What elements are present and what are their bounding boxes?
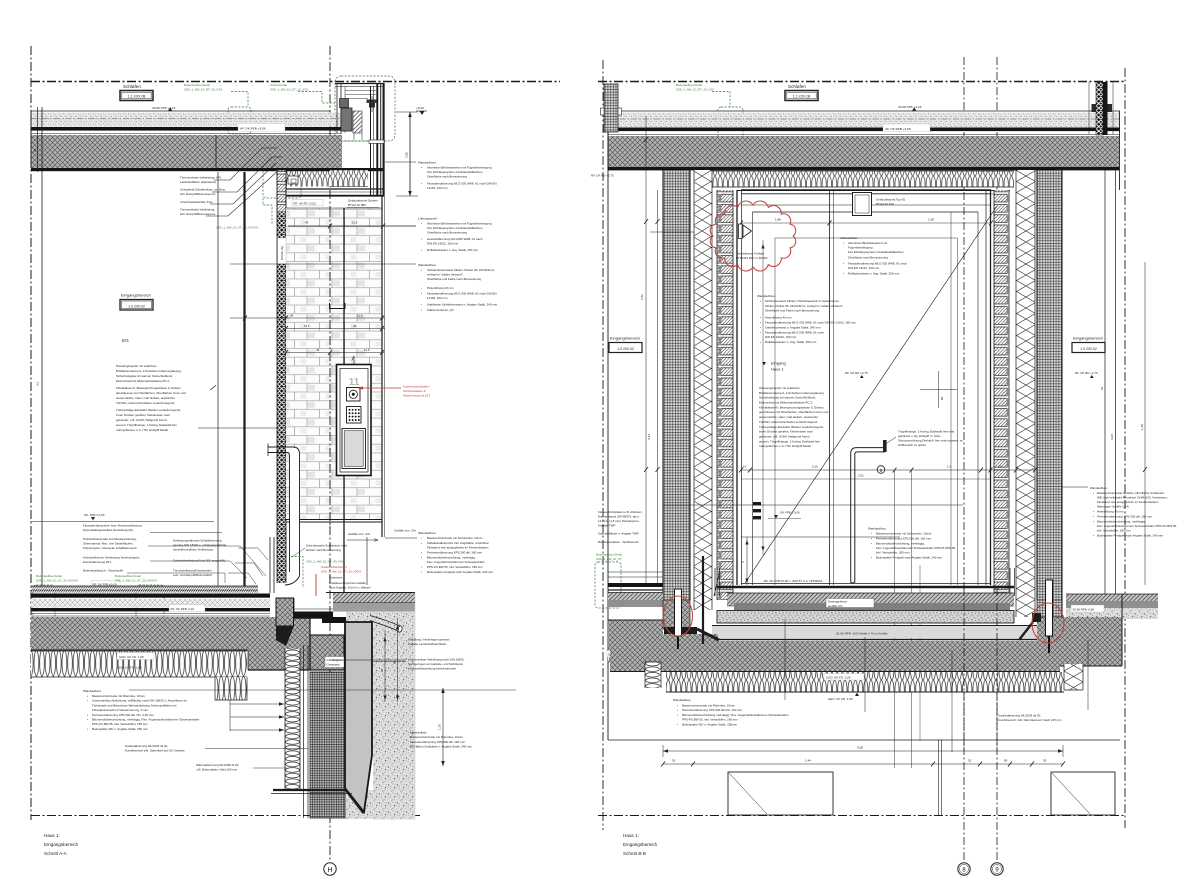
svg-text:Luft- und dampfdiffusionsdicht: Luft- und dampfdiffusionsdicht bbox=[173, 573, 212, 577]
svg-text:1,20: 1,20 bbox=[438, 724, 442, 730]
svg-text:Flissband, fein ausgeglichen i: Flissband, fein ausgeglichen im Fensterb… bbox=[1097, 500, 1159, 504]
svg-text:+6,00: +6,00 bbox=[416, 106, 424, 110]
svg-text:RF. UK RD +2,75: RF. UK RD +2,75 bbox=[845, 371, 868, 375]
svg-text:Flissband, fein ausgeglichen i: Flissband, fein ausgeglichen im Fensterb… bbox=[427, 546, 489, 550]
svg-text:SSK_1_AW_10_VT: SSK_1_AW_10_VT bbox=[596, 557, 622, 561]
svg-text:Türgriffstange, 1-förmig, Edel: Türgriffstange, 1-förmig, Edelstahl fein… bbox=[898, 430, 954, 434]
svg-text:SSK_1_AW_10_VT_90_XXX: SSK_1_AW_10_VT_90_XXX bbox=[306, 560, 344, 564]
svg-text:49: 49 bbox=[353, 324, 357, 328]
svg-text:•: • bbox=[421, 308, 422, 312]
svg-text:DIN EN 13162, 160 mm: DIN EN 13162, 160 mm bbox=[427, 242, 459, 246]
svg-text:Aussensprechstelle /: Aussensprechstelle / bbox=[403, 385, 430, 389]
svg-text:2,52: 2,52 bbox=[640, 294, 644, 300]
svg-text:gemäss DIN 18040-1, schlagrege: gemäss DIN 18040-1, schlagregendichte, bbox=[173, 543, 227, 547]
svg-text:Stahlbeton Sichtbetonwand n. A: Stahlbeton Sichtbetonwand n. Angabe Stat… bbox=[427, 303, 498, 307]
svg-text:gebürstet, o.B. GUMI, Haftgrun: gebürstet, o.B. GUMI, Haftgrund fremd bbox=[116, 418, 167, 422]
svg-text:SSK_1_AW_10_VT_30_XXXXX: SSK_1_AW_10_VT_30_XXXXX bbox=[216, 226, 258, 230]
svg-text:•: • bbox=[421, 182, 422, 186]
svg-text:•: • bbox=[421, 166, 422, 170]
svg-text:•: • bbox=[421, 536, 422, 540]
svg-text:Perimeterdämmung XPS,300 dkl,: Perimeterdämmung XPS,300 dkl, 160 mm bbox=[427, 551, 483, 555]
svg-text:Türschliesser Freilauf: Türschliesser Freilauf bbox=[736, 252, 764, 256]
svg-text:30: 30 bbox=[672, 759, 676, 763]
svg-text:1,48: 1,48 bbox=[1140, 424, 1144, 430]
svg-text:Perimeterdämmung XPS,300 dkl,: Perimeterdämmung XPS,300 dkl, 160 mm bbox=[876, 537, 932, 541]
svg-text:o.B. Dämmplatte, Naht 150 mm: o.B. Dämmplatte, Naht 150 mm bbox=[196, 768, 238, 772]
svg-text:Wandaufbau:: Wandaufbau: bbox=[1090, 486, 1108, 490]
svg-text:geschlossen mit Oberflächen, O: geschlossen mit Oberflächen, Oberflächen… bbox=[759, 410, 829, 414]
svg-text:•: • bbox=[421, 286, 422, 290]
svg-text:Flex. Fugendichtschlämmen Schw: Flex. Fugendichtschlämmen Schwedenbahn bbox=[427, 560, 485, 564]
svg-text:Rollladenkasten n. Ang. Statik: Rollladenkasten n. Ang. Statik, 250 mm bbox=[848, 272, 900, 276]
svg-text:1.1.XXX.08: 1.1.XXX.08 bbox=[128, 95, 146, 99]
svg-text:H: H bbox=[327, 867, 332, 874]
svg-text:80: 80 bbox=[393, 660, 397, 664]
svg-text:aussen: Türgriffstange, 1-förm: aussen: Türgriffstange, 1-förmig, Edelst… bbox=[116, 423, 177, 427]
svg-text:Sockeldämmung WLG035 dk 30,: Sockeldämmung WLG035 dk 30, bbox=[125, 744, 168, 748]
svg-text:Kombibereich, inkl. Dämmkeil a: Kombibereich, inkl. Dämmkeil auf. Nach 1… bbox=[998, 718, 1062, 722]
svg-text:Fassadendämmung WLG 035 WAB, A: Fassadendämmung WLG 035 WAB, A1 nach bbox=[765, 331, 824, 335]
svg-text:Wärmedämmung WLG035 df 20,: Wärmedämmung WLG035 df 20, bbox=[196, 763, 239, 767]
svg-text:•: • bbox=[421, 541, 422, 545]
svg-text:GEO. UK FD -1,80: GEO. UK FD -1,80 bbox=[828, 697, 853, 701]
svg-text:•: • bbox=[760, 299, 761, 303]
svg-text:•: • bbox=[1093, 520, 1094, 524]
svg-text:•: • bbox=[871, 542, 872, 546]
svg-text:•: • bbox=[760, 326, 761, 330]
svg-text:Angabe Landschaftsarchitekt: Angabe Landschaftsarchitekt bbox=[408, 642, 446, 646]
svg-text:20: 20 bbox=[968, 759, 972, 763]
svg-text:Fassadendämmung WLG 035 WAB, A: Fassadendämmung WLG 035 WAB, A1 nach bbox=[848, 261, 907, 265]
svg-text:1,44: 1,44 bbox=[805, 759, 811, 763]
svg-text:PPS-PU,BW 55, inkl. Verlaufsfi: PPS-PU,BW 55, inkl. Verlaufsfilm, 265 mm bbox=[427, 565, 483, 569]
svg-text:EG: EG bbox=[122, 338, 129, 343]
svg-text:5,08: 5,08 bbox=[857, 746, 863, 750]
svg-text:Wandaufbau:: Wandaufbau: bbox=[418, 161, 436, 165]
svg-text:Rollladenkasten n. ang. Statik: Rollladenkasten n. ang. Statik, 250 mm bbox=[427, 248, 479, 252]
svg-text:Wandaufbau:: Wandaufbau: bbox=[418, 531, 436, 535]
svg-text:Eingangsbereich: Eingangsbereich bbox=[44, 842, 79, 847]
svg-text:•: • bbox=[871, 537, 872, 541]
svg-text:•: • bbox=[87, 727, 88, 731]
svg-text:Hauseingangstür mit seitlichem: Hauseingangstür mit seitlichem bbox=[759, 386, 800, 390]
svg-text:Türfassade und Bituminöse Bahn: Türfassade und Bituminöse Bahnabdichtung… bbox=[92, 703, 177, 707]
svg-text:OK. FFB ± 0,00: OK. FFB ± 0,00 bbox=[84, 513, 105, 517]
svg-text:Abstimmung mit ELT: Abstimmung mit ELT bbox=[403, 394, 430, 398]
svg-text:•: • bbox=[843, 261, 844, 265]
svg-text:Wandaufbau:: Wandaufbau: bbox=[83, 689, 101, 693]
svg-text:Hinterlüftung 40 mm: Hinterlüftung 40 mm bbox=[427, 286, 454, 290]
svg-text:5,10: 5,10 bbox=[812, 465, 818, 469]
svg-text:Bitumendickbeschichtung, mehrl: Bitumendickbeschichtung, mehrlagig, Flex… bbox=[92, 718, 200, 722]
svg-text:Auffüllung / Hinterlagen gemäs: Auffüllung / Hinterlagen gemäss bbox=[408, 638, 450, 642]
svg-text:Gewegepl.: Gewegepl. bbox=[327, 663, 341, 667]
svg-text:36: 36 bbox=[290, 314, 294, 318]
svg-text:Schnitt A-A: Schnitt A-A bbox=[44, 851, 68, 856]
svg-text:Perimeterdämmung XPS,300 dkl 0: Perimeterdämmung XPS,300 dkl 0%, 160 mm bbox=[682, 708, 743, 712]
svg-text:Flex. Fugendichtschlämmen Schw: Flex. Fugendichtschlämmen Schwedenbahn P… bbox=[1097, 524, 1177, 528]
svg-text:•: • bbox=[760, 340, 761, 344]
svg-text:Bodenplatte WU n. Angabe Stati: Bodenplatte WU n. Angabe Statik, 250mm bbox=[682, 722, 738, 726]
svg-text:Bitumendickbeschichtung, mehrl: Bitumendickbeschichtung, mehrlagig, bbox=[427, 556, 476, 560]
svg-text:Angabe TWP: Angabe TWP bbox=[598, 524, 615, 528]
svg-text:Aluminium Blechkassetten mit F: Aluminium Blechkassetten mit Fugenhinter… bbox=[427, 166, 492, 170]
svg-text:•: • bbox=[677, 704, 678, 708]
svg-text:Entwässerungsrinne Gefälle: Entwässerungsrinne Gefälle bbox=[329, 581, 366, 585]
svg-text:Fixierstein: Fixierstein bbox=[329, 576, 343, 580]
svg-text:Bodenplatte Fertigteil nach An: Bodenplatte Fertigteil nach Angabe Stati… bbox=[876, 556, 943, 560]
svg-text:Schutzvorrichtung Drehtürfl. f: Schutzvorrichtung Drehtürfl. fein matt s… bbox=[898, 439, 963, 443]
svg-text:Sicherheitsglas mit warmer Kan: Sicherheitsglas mit warmer Kante/Alublen… bbox=[116, 374, 173, 378]
svg-text:Bitumendickbeschichtung, mehrl: Bitumendickbeschichtung, mehrlagig, bbox=[876, 542, 925, 546]
svg-text:•: • bbox=[421, 248, 422, 252]
svg-text:50: 50 bbox=[940, 396, 944, 400]
svg-text:30.08.STB +3,15: 30.08.STB +3,15 bbox=[898, 105, 922, 109]
svg-text:Holzfunktionsmatte mit Filterk: Holzfunktionsmatte mit Filterkaschierung… bbox=[83, 537, 137, 541]
svg-text:3,44: 3,44 bbox=[1110, 434, 1114, 440]
svg-text:RF. OK FFB ±0,00 = +526,57 m ü: RF. OK FFB ±0,00 = +526,57 m ü. NHN2016 bbox=[764, 579, 823, 583]
svg-text:Klimaklasse III, Beanspruchung: Klimaklasse III, Beanspruchungsklasse S,… bbox=[759, 405, 824, 409]
svg-text:Wandaufbau:: Wandaufbau: bbox=[868, 527, 886, 531]
svg-text:Klebeschichtplatten o.B. Alube: Klebeschichtplatten o.B. Alubeton bbox=[598, 510, 642, 514]
svg-text:1.0.200.02: 1.0.200.02 bbox=[128, 305, 145, 309]
svg-text:Einbruchschutz Widerstandsklas: Einbruchschutz Widerstandsklasse RC 2, bbox=[759, 401, 813, 405]
svg-text:Türriffen, überenchschieber ve: Türriffen, überenchschieber verdeckt lie… bbox=[116, 401, 175, 405]
svg-text:Eingangsbereich: Eingangsbereich bbox=[610, 336, 640, 341]
svg-text:Polypropylen: Unterseite schal: Polypropylen: Unterseite schalldämmend bbox=[83, 546, 137, 550]
svg-text:Haus 1:: Haus 1: bbox=[623, 833, 639, 838]
svg-text:SSK_1_AW_10_DT_10_XXX: SSK_1_AW_10_DT_10_XXX bbox=[270, 87, 308, 91]
svg-text:Sockel-Abdichtung /: Sockel-Abdichtung / bbox=[321, 565, 347, 569]
svg-text:Fugenhinterlegung: Fugenhinterlegung bbox=[848, 246, 873, 250]
svg-text:inkl. Einhängesystem mit Edels: inkl. Einhängesystem mit Edelstahllasche… bbox=[848, 250, 904, 254]
svg-text:lackiert nach Bemusterung: lackiert nach Bemusterung bbox=[306, 548, 341, 552]
svg-text:Wandaufbau:: Wandaufbau: bbox=[757, 294, 775, 298]
svg-text:30.08.STB +3,15: 30.08.STB +3,15 bbox=[152, 106, 176, 110]
svg-text:Schenkmaske Sockelstein matt: Schenkmaske Sockelstein matt bbox=[306, 544, 347, 548]
svg-text:3,2: 3,2 bbox=[36, 382, 40, 386]
svg-text:11,5: 11,5 bbox=[304, 324, 310, 328]
svg-text:Fassadenbausystem bzw. Alumini: Fassadenbausystem bzw. Aluminiumfassung bbox=[83, 524, 142, 528]
svg-text:Bautenschutzmatte mit Schutzvl: Bautenschutzmatte mit Schutzvlies, 10mm bbox=[876, 532, 932, 536]
svg-text:•: • bbox=[1093, 491, 1094, 495]
svg-text:Schlafen: Schlafen bbox=[788, 84, 806, 89]
svg-text:aussen: Türgriffstange, 1-förm: aussen: Türgriffstange, 1-förmig, Edelst… bbox=[759, 439, 820, 443]
svg-text:•: • bbox=[421, 222, 422, 226]
svg-text:15: 15 bbox=[998, 465, 1002, 469]
svg-text:Briefkastenelement, 3-Scheiben: Briefkastenelement, 3-Scheiben Isolierve… bbox=[759, 391, 825, 395]
svg-text:1.0.200.02: 1.0.200.02 bbox=[1080, 347, 1097, 351]
svg-text:•: • bbox=[871, 556, 872, 560]
svg-text:•: • bbox=[871, 532, 872, 536]
svg-text:13162, 160 mm: 13162, 160 mm bbox=[427, 186, 448, 190]
svg-text:RF. OK RFB -0,16: RF. OK RFB -0,16 bbox=[171, 607, 195, 611]
svg-text:DIN EN 13162, 160 mm: DIN EN 13162, 160 mm bbox=[765, 335, 797, 339]
svg-text:Eingang: Eingang bbox=[771, 361, 786, 366]
svg-text:SSK_1_AW_10_DT_30_XXXX: SSK_1_AW_10_DT_30_XXXX bbox=[321, 570, 361, 574]
svg-text:Hohlraumgedämmte Schalldämmung: Hohlraumgedämmte Schalldämmung bbox=[173, 539, 222, 543]
svg-text:Türbeschläge Edelstahl, Bänder: Türbeschläge Edelstahl, Bänder verdeckt … bbox=[116, 408, 181, 412]
svg-text:RF. UK RD +2,75: RF. UK RD +2,75 bbox=[591, 174, 614, 178]
svg-text:•: • bbox=[1093, 510, 1094, 514]
svg-text:SSK_1_AW_10_DT_20_XXX: SSK_1_AW_10_DT_20_XXX bbox=[184, 87, 222, 91]
svg-text:inkl. Einhängesystem mit Edels: inkl. Einhängesystem mit Edelstahllasche… bbox=[427, 170, 483, 174]
svg-text:matt gebürstet, n.A. ITM, Endg: matt gebürstet, n.A. ITM, Endgriff Metal… bbox=[759, 444, 811, 448]
svg-text:•: • bbox=[421, 556, 422, 560]
svg-text:Sockeldämmung WLG035 dk 30,: Sockeldämmung WLG035 dk 30, bbox=[998, 714, 1041, 718]
svg-text:•: • bbox=[421, 570, 422, 574]
svg-text:Obermaterial: Alta-, drei Seit: Obermaterial: Alta-, drei Seitenflächen, bbox=[83, 542, 134, 546]
svg-text:•: • bbox=[1093, 534, 1094, 538]
svg-text:11,5: 11,5 bbox=[352, 221, 358, 225]
svg-text:AF. OK RFB +3,06: AF. OK RFB +3,06 bbox=[885, 127, 911, 131]
svg-text:Bautenschutzmatte mit Filtervl: Bautenschutzmatte mit Filtervlies, 10mm bbox=[92, 694, 145, 698]
svg-text:Schnitt B-B: Schnitt B-B bbox=[623, 851, 646, 856]
svg-text:umweltfreundliche Verkleidung: umweltfreundliche Verkleidung bbox=[173, 548, 213, 552]
svg-text:OK FFB ± 0,00: OK FFB ± 0,00 bbox=[780, 511, 800, 515]
svg-text:20 UK RFB -100 Gefälle 2 % im: 20 UK RFB -100 Gefälle 2 % im Gefälle bbox=[836, 632, 888, 636]
svg-text:gebürstet o. flg. Endgriff m.: gebürstet o. flg. Endgriff m. hohe bbox=[898, 434, 941, 438]
svg-text:Nomenklaturgestelltes Anschlus: Nomenklaturgestelltes Anschlussprofil, bbox=[83, 528, 133, 532]
svg-text:innen Drücker gestiftet, Klebe: innen Drücker gestiftet, Klebeleisten ma… bbox=[116, 413, 170, 417]
svg-text:11: 11 bbox=[349, 377, 360, 388]
svg-text:49: 49 bbox=[305, 221, 309, 225]
svg-text:Aluminium Blechkassetten mit F: Aluminium Blechkassetten mit Fugenhinter… bbox=[427, 222, 492, 226]
svg-text:•: • bbox=[87, 713, 88, 717]
svg-text:15: 15 bbox=[743, 465, 747, 469]
svg-text:Eingangsbereich: Eingangsbereich bbox=[623, 842, 658, 847]
svg-text:Meterauflast:: Meterauflast: bbox=[410, 731, 427, 735]
svg-text:2,01: 2,01 bbox=[858, 474, 864, 478]
svg-text:Gebäudezutritt Typ B1: Gebäudezutritt Typ B1 bbox=[876, 198, 906, 202]
svg-text:•: • bbox=[421, 551, 422, 555]
svg-text:Hinterlüftung 40 mm: Hinterlüftung 40 mm bbox=[765, 316, 792, 320]
svg-text:abschliessen mit Oberflächen,: abschliessen mit Oberflächen, Oberfläche… bbox=[116, 391, 186, 395]
svg-text:inkl. Verlaufsfilm, 265 mm: inkl. Verlaufsfilm, 265 mm bbox=[1097, 529, 1131, 533]
svg-text:PPS-PU,BW 55, inkl. Verlaufsfi: PPS-PU,BW 55, inkl. Verlaufsfilm, 265 mm bbox=[682, 718, 738, 722]
svg-text:•: • bbox=[421, 565, 422, 569]
svg-text:Schlüsseltaster in: Schlüsseltaster in bbox=[403, 389, 426, 393]
svg-text:13162, 160 mm: 13162, 160 mm bbox=[427, 296, 448, 300]
svg-text:Rollladenkasten n. Ang. Statik: Rollladenkasten n. Ang. Statik, 250 mm bbox=[765, 340, 817, 344]
svg-text:aussen Eiche, natur, matt lack: aussen Eiche, natur, matt lackiert, elas… bbox=[759, 415, 818, 419]
svg-text:Gefälle min. 2%: Gefälle min. 2% bbox=[394, 529, 416, 533]
svg-text:SSK_1_AW_10_VT_20_XXXXX: SSK_1_AW_10_VT_20_XXXXX bbox=[36, 578, 78, 582]
svg-text:Flex. Fugendichtschlämmen Schw: Flex. Fugendichtschlämmen Schwedenbahn P… bbox=[876, 546, 956, 550]
svg-text:Stahlbetonwand n. Angabe Stati: Stahlbetonwand n. Angabe Statik, 240 mm bbox=[765, 326, 821, 330]
svg-text:•: • bbox=[421, 303, 422, 307]
svg-text:Bodenplatte Fertigteil nach An: Bodenplatte Fertigteil nach Angabe Stati… bbox=[427, 570, 494, 574]
svg-text:Wandaufbau:: Wandaufbau: bbox=[418, 263, 436, 267]
svg-text:Verblendmauerwerk Klinker, Kli: Verblendmauerwerk Klinker, Klinker DF 24… bbox=[427, 268, 495, 272]
svg-text:Kunststoffreiche Verbindung St: Kunststoffreiche Verbindung Streitschrau… bbox=[83, 556, 140, 560]
svg-text:Hinterlüftung 40 mm: Hinterlüftung 40 mm bbox=[1097, 510, 1124, 514]
svg-text:Klinker, Klinker DF 240/115mm,: Klinker, Klinker DF 240/115mm, verlegt i… bbox=[765, 304, 844, 308]
svg-text:3,44: 3,44 bbox=[647, 434, 651, 440]
svg-text:Bautenschutzmatte mit Filtervl: Bautenschutzmatte mit Filtervlies, 10mm bbox=[410, 735, 463, 739]
svg-text:WB, Nah helixstahl-Berzekturr: WB, Nah helixstahl-Berzekturr OHM 6/13, … bbox=[1097, 496, 1168, 500]
svg-text:Wandaufbau:: Wandaufbau: bbox=[673, 698, 691, 702]
svg-text:•: • bbox=[760, 331, 761, 335]
svg-text:AF. OK RFB +3,06: AF. OK RFB +3,06 bbox=[240, 126, 266, 130]
svg-text:•: • bbox=[421, 268, 422, 272]
svg-text:•: • bbox=[843, 272, 844, 276]
svg-text:52: 52 bbox=[1100, 386, 1104, 390]
svg-text:BTGA 20 KW: BTGA 20 KW bbox=[876, 202, 894, 206]
svg-text:89: 89 bbox=[1004, 759, 1008, 763]
svg-text:Edelstahlwinkelprofil (mit WS: Edelstahlwinkelprofil (mit WS ausgefüllt… bbox=[173, 559, 225, 563]
svg-text:Bitumendickbeschichtung mehrla: Bitumendickbeschichtung mehrlagig, Flex.… bbox=[682, 713, 789, 717]
svg-text:Einbruchschutz Widerstandsklas: Einbruchschutz Widerstandsklasse RC 2, bbox=[116, 379, 170, 383]
svg-text:Perimeterdämmung XPS,300 dkl,: Perimeterdämmung XPS,300 dkl, 160 mm bbox=[410, 740, 466, 744]
svg-text:•: • bbox=[843, 241, 844, 245]
svg-text:Befestigerplatten - Sichtberei: Befestigerplatten - Sichtbereich bbox=[598, 540, 639, 544]
svg-text:inkl. Dampfdiffusionssperre: inkl. Dampfdiffusionssperre bbox=[180, 212, 216, 216]
svg-text:RF. UK RD +2,75: RF. UK RD +2,75 bbox=[1075, 371, 1098, 375]
svg-text:Aussenseitige Abdichtung nach: Aussenseitige Abdichtung nach DIN 18533, bbox=[408, 658, 465, 662]
svg-text:•: • bbox=[87, 699, 88, 703]
svg-text:Eingangsbereich: Eingangsbereich bbox=[1073, 336, 1103, 341]
svg-text:1,0: 1,0 bbox=[947, 465, 951, 469]
svg-text:Fassadendämmung WLG 035 WAB, A: Fassadendämmung WLG 035 WAB, A1 nach DIN… bbox=[427, 182, 497, 186]
svg-text:1,38: 1,38 bbox=[928, 218, 934, 222]
svg-text:RF. UK FD +2,52: RF. UK FD +2,52 bbox=[294, 202, 317, 206]
svg-text:Haus 1:: Haus 1: bbox=[44, 833, 60, 838]
svg-text:11,5: 11,5 bbox=[357, 314, 363, 318]
svg-text:Bodenplatte Fertigteil nach An: Bodenplatte Fertigteil nach Angabe Stati… bbox=[1097, 534, 1164, 538]
svg-text:Diamantwand (DF,45/975, abs.): Diamantwand (DF,45/975, abs.) bbox=[598, 515, 639, 519]
svg-text:Lüftungsprofil:: Lüftungsprofil: bbox=[418, 217, 438, 221]
svg-text:Gefälle min. 2%: Gefälle min. 2% bbox=[348, 532, 370, 536]
svg-text:30.08 RFB -0,86: 30.08 RFB -0,86 bbox=[1073, 608, 1095, 612]
svg-text:•: • bbox=[760, 316, 761, 320]
svg-text:Oberfläche nach Bemusterung: Oberfläche nach Bemusterung bbox=[848, 256, 888, 260]
svg-text:Kalkzementputz, Q3: Kalkzementputz, Q3 bbox=[427, 308, 454, 312]
svg-text:Spachtelfläche n. Angabe TWP: Spachtelfläche n. Angabe TWP bbox=[598, 532, 639, 536]
svg-text:inkl. Verlaufsfilm, 265 mm: inkl. Verlaufsfilm, 265 mm bbox=[876, 551, 910, 555]
svg-text:UGD. UK FD -1,80: UGD. UK FD -1,80 bbox=[826, 676, 851, 680]
svg-text:Bautenschutzmatte mit Filtervl: Bautenschutzmatte mit Filtervlies, 10mm bbox=[682, 704, 735, 708]
svg-text:•: • bbox=[677, 708, 678, 712]
svg-text:SSK_1_AW_10_DT_20_XXX: SSK_1_AW_10_DT_20_XXX bbox=[676, 87, 714, 91]
svg-text:Türschwellenprofil barrierefre: Türschwellenprofil barrierefrei, bbox=[173, 569, 213, 573]
svg-text:1.0.200.02: 1.0.200.02 bbox=[617, 347, 634, 351]
svg-text:inkl. Einhängesystem mit Edels: inkl. Einhängesystem mit Edelstahllasche… bbox=[427, 226, 483, 230]
svg-text:Dichtb. 2lg: Dichtb. 2lg bbox=[280, 246, 284, 260]
svg-text:Haus 1: Haus 1 bbox=[771, 367, 784, 372]
svg-text:Perimeterdämmung XPS,300 dkl.: Perimeterdämmung XPS,300 dkl. 0%, 2,60 m… bbox=[92, 713, 154, 717]
svg-text:•: • bbox=[677, 722, 678, 726]
svg-text:DIN EN 13162, 160 mm: DIN EN 13162, 160 mm bbox=[848, 266, 880, 270]
svg-text:12,5cm, (1,5 mm) Dampfsperre,: 12,5cm, (1,5 mm) Dampfsperre, bbox=[598, 519, 640, 523]
svg-text:Schlafen: Schlafen bbox=[123, 84, 141, 89]
svg-text:Fassadendämmung WLG 035 WAB, A: Fassadendämmung WLG 035 WAB, A1 nach DIN… bbox=[427, 292, 497, 296]
svg-text:hochgezogen an Gelände- und Si: hochgezogen an Gelände- und Sichtbeton bbox=[408, 662, 463, 666]
svg-text:UGD. UK FD -1,08: UGD. UK FD -1,08 bbox=[119, 655, 144, 659]
svg-text:matt gebürstet, n.A. ITM, Endg: matt gebürstet, n.A. ITM, Endgriff Metal… bbox=[116, 428, 168, 432]
svg-text:Oberfläche und Farbe nach Bemu: Oberfläche und Farbe nach Bemusterung bbox=[765, 309, 819, 313]
svg-text:BTGA JK 880: BTGA JK 880 bbox=[348, 203, 366, 207]
svg-text:•: • bbox=[677, 713, 678, 717]
svg-text:Eingangsbereich: Eingangsbereich bbox=[121, 293, 151, 298]
svg-text:Wartungen Gefälle 2,2%: Wartungen Gefälle 2,2% bbox=[1097, 505, 1129, 509]
svg-text:Briefkastenelement, 3-Scheiben: Briefkastenelement, 3-Scheiben Isolierve… bbox=[116, 369, 182, 373]
svg-text:Kunststoffabdichtung hinterlau: Kunststoffabdichtung hinterlaufsicher bbox=[408, 667, 456, 671]
svg-text:SSK_1_AW_10_VT_20_XXXXX: SSK_1_AW_10_VT_20_XXXXX bbox=[115, 578, 157, 582]
svg-text:Bautenschutzmatte mit Schutzvl: Bautenschutzmatte mit Schutzvlies, 10mm bbox=[427, 536, 483, 540]
svg-text:•: • bbox=[760, 321, 761, 325]
svg-text:Türbeschläge Edelstahl, Bänder: Türbeschläge Edelstahl, Bänder verdeckt … bbox=[759, 425, 824, 429]
svg-text:Bitumendickbeschichtung, mehrl: Bitumendickbeschichtung, mehrlagig, bbox=[1097, 520, 1146, 524]
svg-text:GEO. UK FD -1,80: GEO. UK FD -1,80 bbox=[117, 666, 142, 670]
svg-text:Aussenaufbau Abdichtung, vollf: Aussenaufbau Abdichtung, vollflächig, na… bbox=[92, 699, 187, 703]
svg-text:1.1.XXX.08: 1.1.XXX.08 bbox=[793, 95, 811, 99]
svg-text:Griffbereich zu optiert: Griffbereich zu optiert bbox=[898, 443, 926, 447]
svg-text:Türriffen, überenchschieber ve: Türriffen, überenchschieber verdeckt lie… bbox=[759, 420, 818, 424]
svg-text:WU-Beton Sohlplatte n. Angabe: WU-Beton Sohlplatte n. Angabe Statik, 24… bbox=[410, 745, 472, 749]
svg-text:Aluminium Blechkassetten mit: Aluminium Blechkassetten mit bbox=[848, 241, 887, 245]
svg-text:60: 60 bbox=[380, 668, 384, 672]
svg-text:Attikaaufbau:: Attikaaufbau: bbox=[840, 236, 858, 240]
svg-text:Bodenplatte WU n. Angabe Stati: Bodenplatte WU n. Angabe Statik, 250 mm bbox=[92, 727, 148, 731]
svg-text:Sichtmauerwerk Klinker, Klinke: Sichtmauerwerk Klinker, Klinkerbauwerk i… bbox=[765, 299, 839, 303]
svg-text:Estrichdämmung 30:1: Estrichdämmung 30:1 bbox=[83, 560, 112, 564]
svg-text:gebürstet, o.B. GUMI, Haftgrun: gebürstet, o.B. GUMI, Haftgrund fremd bbox=[759, 435, 810, 439]
svg-text:•: • bbox=[421, 292, 422, 296]
svg-text:nach Angabe, 8,5l m² o. Wasser: nach Angabe, 8,5l m² o. Wasser bbox=[329, 586, 371, 590]
svg-text:30: 30 bbox=[33, 148, 37, 152]
svg-text:Oberfläche nach Bemusterung: Oberfläche nach Bemusterung bbox=[427, 231, 467, 235]
svg-text:BTS/LES 500, m DF 8%: BTS/LES 500, m DF 8% bbox=[736, 256, 768, 260]
svg-text:•: • bbox=[421, 237, 422, 241]
svg-text:PPS-PU,BW 55, inkl. Verlaufsfi: PPS-PU,BW 55, inkl. Verlaufsfilm, 265 mm bbox=[92, 722, 148, 726]
svg-text:Gefälle 2%: Gefälle 2% bbox=[828, 604, 843, 608]
svg-text:Klimaklasse III, Beanspruchung: Klimaklasse III, Beanspruchungsklasse S,… bbox=[116, 386, 181, 390]
svg-text:Hauseingangstür mit seitlichem: Hauseingangstür mit seitlichem bbox=[116, 364, 157, 368]
svg-text:Gesamtdämmung WLG035 WAB, A1 n: Gesamtdämmung WLG035 WAB, A1 nach bbox=[427, 237, 483, 241]
svg-text:Oberfläche nach Bemusterung: Oberfläche nach Bemusterung bbox=[427, 175, 467, 179]
svg-text:2,50: 2,50 bbox=[405, 152, 409, 158]
svg-text:•: • bbox=[87, 718, 88, 722]
svg-text:innen Drücker gestiftet, Klebe: innen Drücker gestiftet, Klebeleisten ma… bbox=[759, 430, 813, 434]
svg-text:inkl. Dampfdiffusionssperre: inkl. Dampfdiffusionssperre bbox=[180, 192, 216, 196]
svg-text:11,5: 11,5 bbox=[364, 348, 370, 352]
svg-text:Kombibereich inkl. Dämmkeil au: Kombibereich inkl. Dämmkeil auf OK Gelän… bbox=[125, 749, 185, 753]
svg-text:Anschlussdetail EG-Türe: Anschlussdetail EG-Türe bbox=[180, 200, 213, 204]
svg-text:aussen Eiche, natur, matt lack: aussen Eiche, natur, matt lackiert, elas… bbox=[116, 396, 175, 400]
svg-text:1,88: 1,88 bbox=[775, 218, 781, 222]
svg-text:Kabelkanalleerrohre inkl. Zugd: Kabelkanalleerrohre inkl. Zugdrähte, uns… bbox=[427, 541, 489, 545]
svg-text:Flüssigkunststoff mit Vliesarm: Flüssigkunststoff mit Vliesarmierung, 5 … bbox=[92, 708, 148, 712]
svg-text:•: • bbox=[87, 694, 88, 698]
svg-text:•: • bbox=[1093, 515, 1094, 519]
svg-text:49: 49 bbox=[316, 348, 320, 352]
svg-text:Bodenausflansch - Sauerstoffe: Bodenausflansch - Sauerstoffe bbox=[83, 569, 123, 573]
svg-text:Fassadendämmung WLG 035 WAB, A: Fassadendämmung WLG 035 WAB, A1 nach DIN… bbox=[765, 321, 856, 325]
svg-text:verlegt im "wilden Verband",: verlegt im "wilden Verband", bbox=[427, 273, 464, 277]
svg-text:Lackoberfläche (alpinweiss): Lackoberfläche (alpinweiss) bbox=[180, 180, 216, 184]
svg-text:Perimeterdämmung XPS,300 dkl,: Perimeterdämmung XPS,300 dkl, 160 mm bbox=[1097, 515, 1153, 519]
svg-text:30: 30 bbox=[1043, 759, 1047, 763]
svg-text:Bautenschutzmatte Gewirks, Obe: Bautenschutzmatte Gewirks, Oberfläche Sc… bbox=[1097, 491, 1165, 495]
svg-text:Sicherheitsglas mit warmer Kan: Sicherheitsglas mit warmer Kante/Alublen… bbox=[759, 396, 816, 400]
svg-text:Oberfläche und Farbe nach Bemu: Oberfläche und Farbe nach Bemusterung bbox=[427, 277, 481, 281]
